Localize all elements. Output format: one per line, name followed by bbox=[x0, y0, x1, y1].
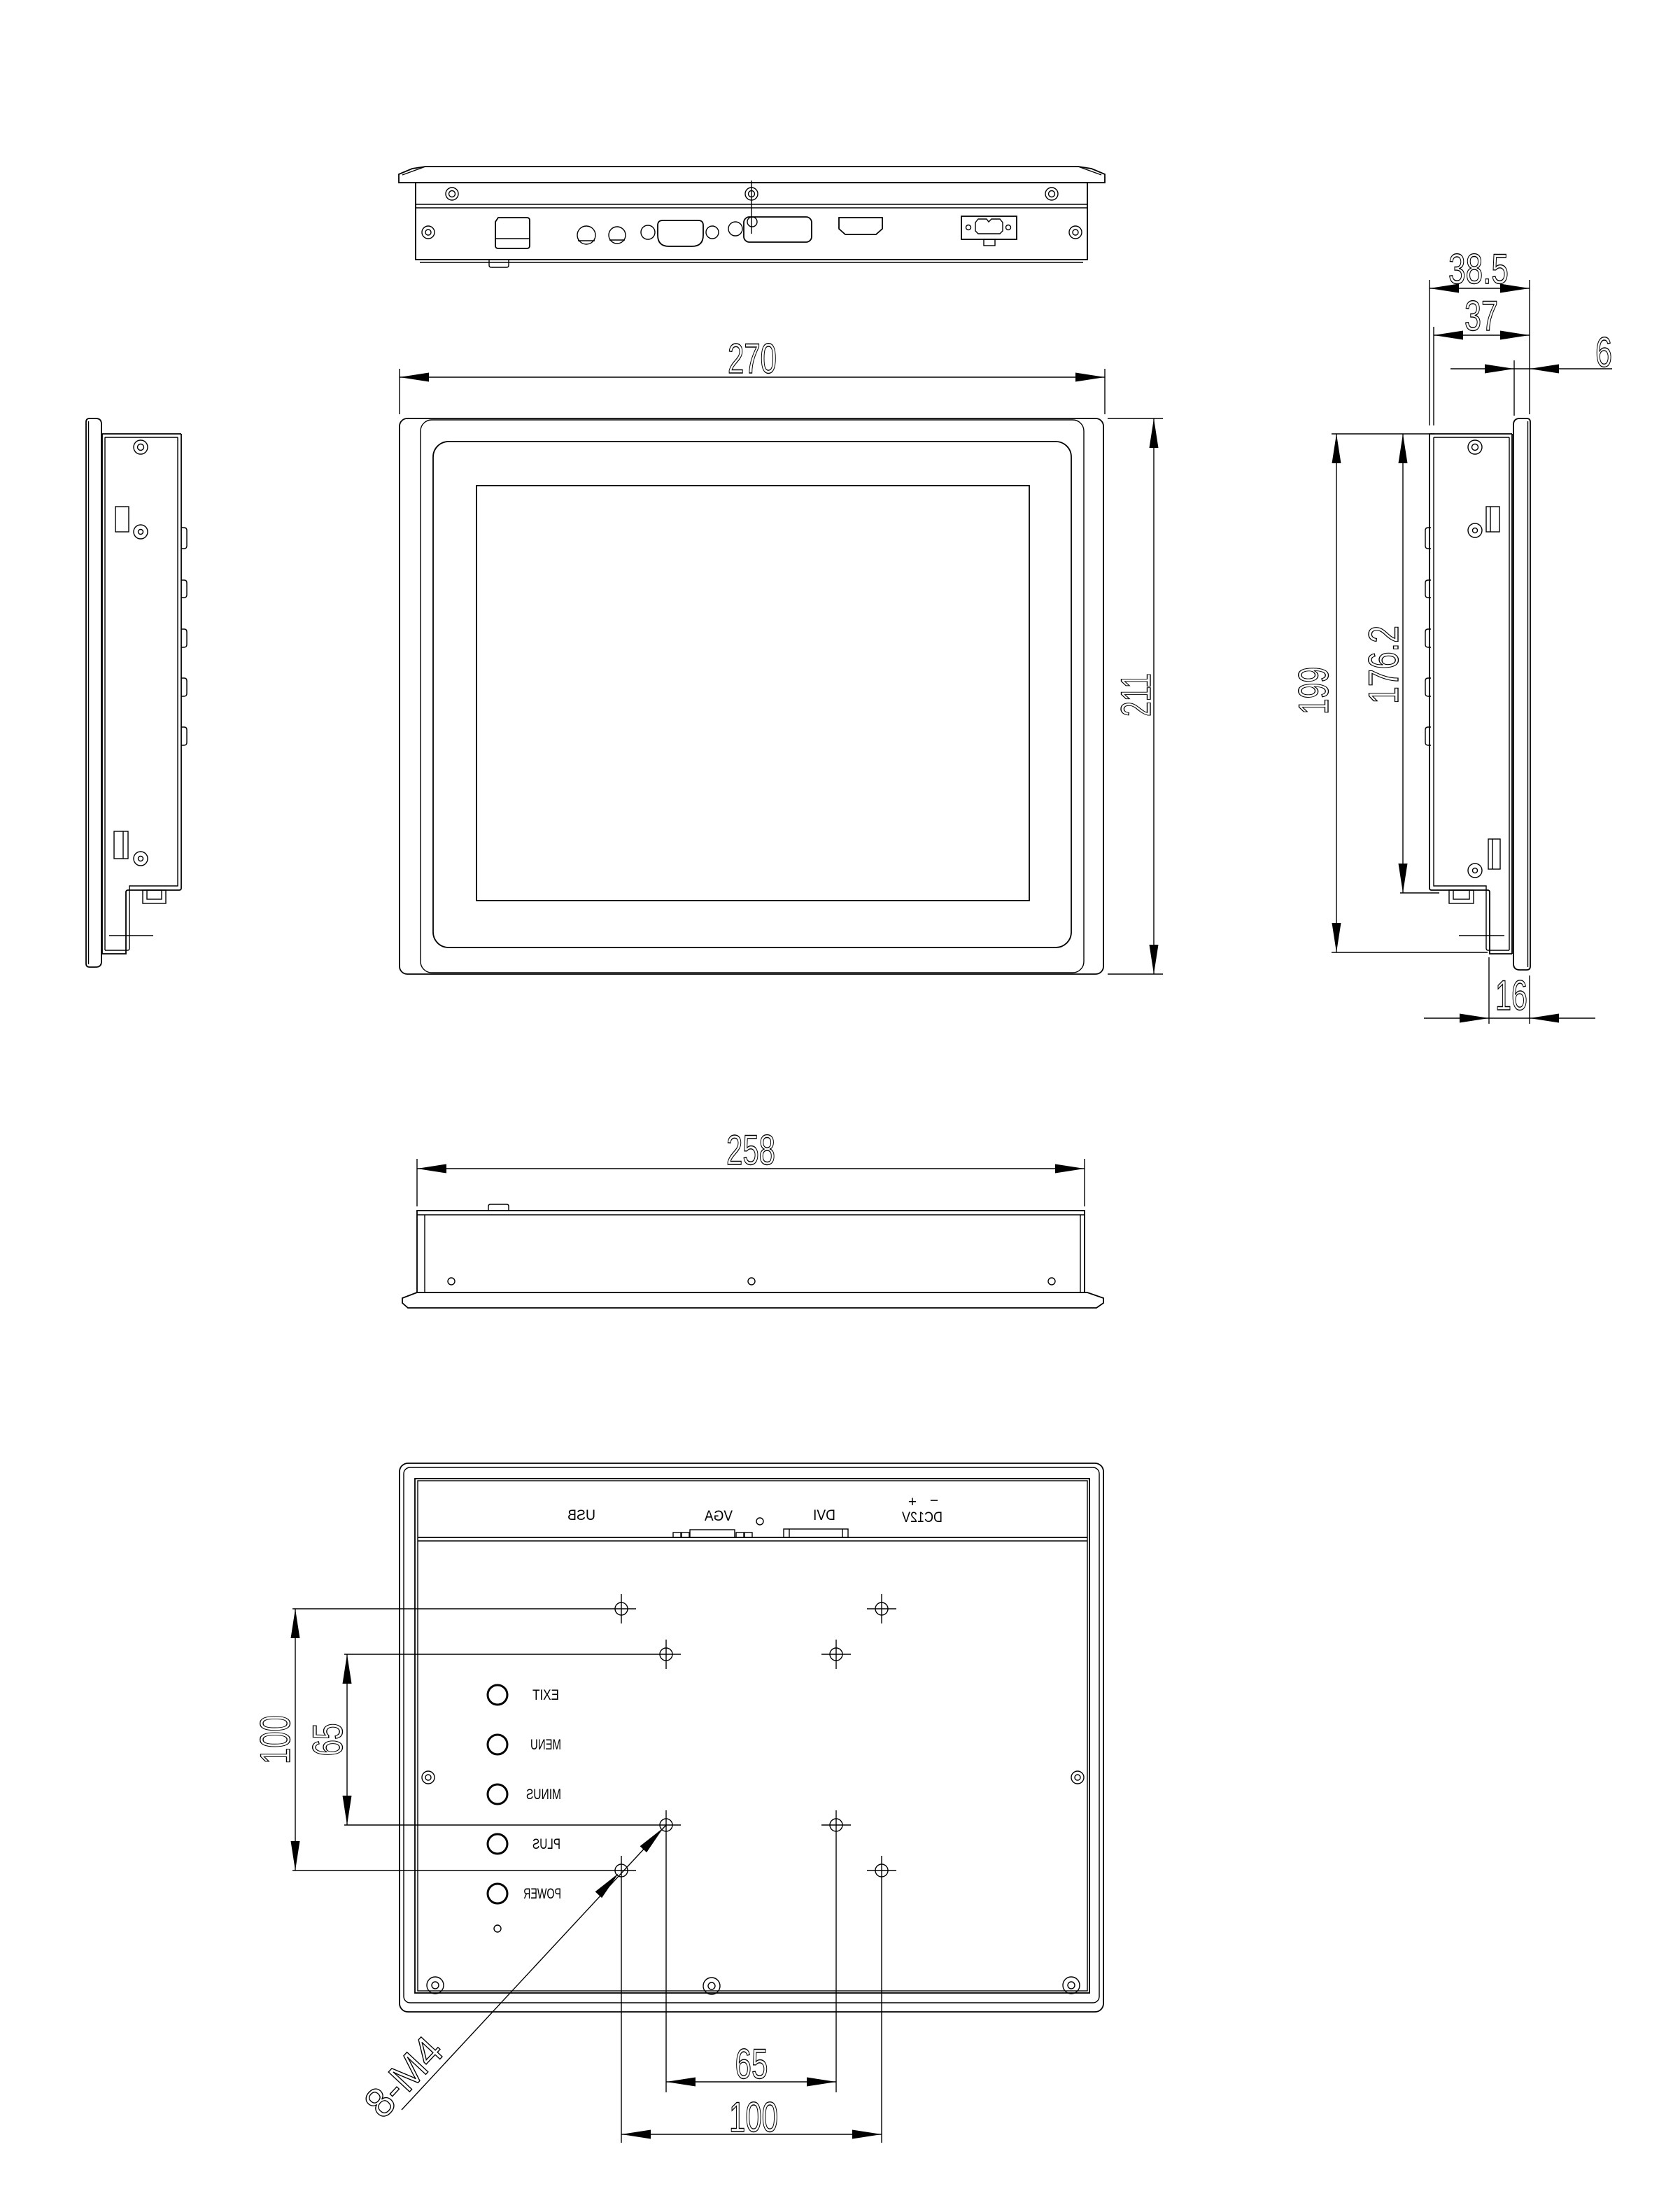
svg-text:270: 270 bbox=[728, 335, 777, 382]
svg-text:37: 37 bbox=[1464, 293, 1498, 339]
svg-text:MENU: MENU bbox=[530, 1737, 561, 1753]
svg-text:−: − bbox=[930, 1493, 938, 1509]
svg-text:38.5: 38.5 bbox=[1448, 246, 1509, 293]
svg-text:+: + bbox=[908, 1494, 917, 1510]
svg-text:211: 211 bbox=[1113, 673, 1159, 717]
svg-text:100: 100 bbox=[252, 1715, 299, 1764]
svg-text:PLUS: PLUS bbox=[532, 1836, 560, 1852]
svg-text:258: 258 bbox=[726, 1127, 775, 1174]
svg-text:65: 65 bbox=[735, 2041, 768, 2087]
svg-text:6: 6 bbox=[1595, 329, 1612, 376]
svg-text:100: 100 bbox=[729, 2094, 778, 2141]
svg-text:DVI: DVI bbox=[813, 1507, 835, 1523]
svg-text:199: 199 bbox=[1290, 667, 1337, 714]
svg-text:176.2: 176.2 bbox=[1360, 626, 1407, 704]
svg-text:DC12V: DC12V bbox=[902, 1509, 943, 1526]
svg-text:EXIT: EXIT bbox=[532, 1687, 559, 1703]
svg-text:POWER: POWER bbox=[523, 1886, 561, 1902]
svg-text:65: 65 bbox=[304, 1724, 351, 1756]
svg-text:USB: USB bbox=[567, 1507, 595, 1523]
svg-text:MINUS: MINUS bbox=[526, 1787, 561, 1803]
svg-text:16: 16 bbox=[1495, 972, 1527, 1019]
svg-text:VGA: VGA bbox=[705, 1508, 733, 1524]
